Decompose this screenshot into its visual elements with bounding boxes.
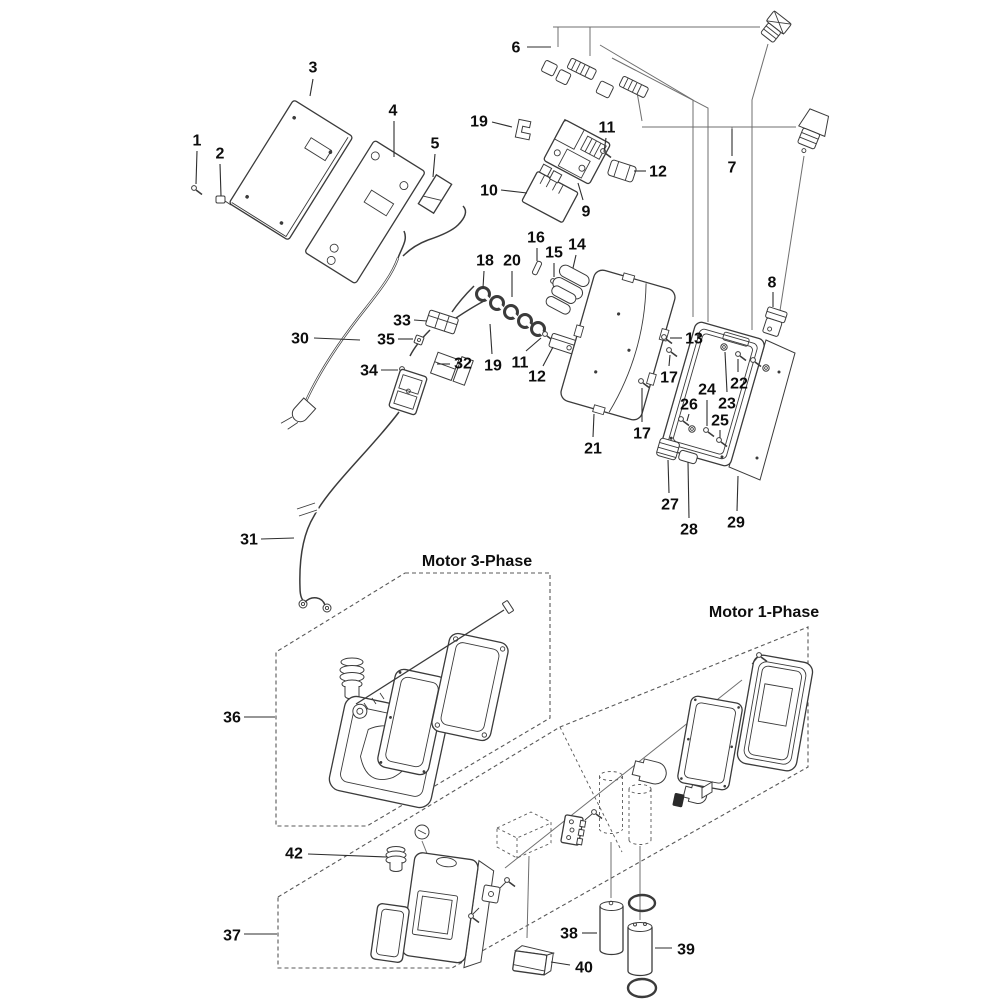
part-6-terminal-connectors-b (596, 68, 649, 112)
spark-plug-connector-icon (758, 11, 791, 45)
exploded-parts-diagram: 1234567891011121314151617171819192011122… (0, 0, 1000, 1000)
part-callout-27: 27 (661, 497, 679, 514)
part-40-box (512, 945, 553, 976)
part-callout-18: 18 (476, 253, 494, 270)
part-callout-35: 35 (377, 332, 395, 349)
part-callout-34: 34 (360, 363, 378, 380)
leader-line-11-2 (526, 338, 541, 351)
leader-line-42 (308, 854, 387, 857)
leader-line-19-2 (490, 324, 492, 354)
part-callout-42: 42 (285, 846, 303, 863)
leader-line-5 (433, 154, 435, 177)
part-callout-19-1: 19 (470, 114, 488, 131)
part-37-switch-housing (401, 852, 495, 970)
part-1phase-cover (736, 654, 814, 773)
part-callout-29: 29 (727, 515, 745, 532)
part-callout-17-2: 17 (633, 426, 651, 443)
part-callout-12-1: 12 (649, 164, 667, 181)
part-39-capacitor (628, 923, 652, 976)
dark-pad (673, 793, 684, 807)
capacitor-strap-large (631, 757, 668, 786)
leader-line-31 (261, 538, 294, 539)
part-callout-36: 36 (223, 710, 241, 727)
lamp-socket-connector-icon (790, 107, 832, 157)
part-35-nut (414, 335, 424, 345)
leader-line-40 (551, 962, 570, 965)
cap-screw (415, 825, 429, 839)
micro-switch (482, 885, 501, 904)
leader-line-21 (593, 414, 594, 437)
part-1-screw (192, 186, 202, 195)
terminal-block (561, 815, 587, 846)
part-callout-15: 15 (545, 245, 563, 262)
leader-line-10 (501, 190, 527, 193)
leader-line-19-1 (492, 122, 512, 127)
leader-line-29 (737, 476, 738, 511)
part-callout-22: 22 (730, 376, 748, 393)
group-title-motor-3-phase: Motor 3-Phase (422, 553, 532, 570)
part-callout-28: 28 (680, 522, 698, 539)
part-1phase-gasket (677, 695, 743, 791)
leader-line-9 (578, 183, 583, 200)
part-callout-33: 33 (393, 313, 411, 330)
part-callout-14: 14 (568, 237, 586, 254)
part-2-nut (216, 196, 231, 205)
part-callout-26: 26 (680, 397, 698, 414)
part-callout-20: 20 (503, 253, 521, 270)
part-16-pin (532, 261, 542, 276)
part-callout-30: 30 (291, 331, 309, 348)
leader-line-33 (414, 320, 427, 321)
part-callout-39: 39 (677, 942, 695, 959)
part-callout-24: 24 (698, 382, 716, 399)
leader-line-1 (196, 151, 197, 184)
switch-block (389, 369, 428, 416)
ghost-capacitor-2 (629, 785, 651, 845)
leader-line-14 (573, 255, 576, 268)
part-callout-11-2: 11 (512, 355, 529, 372)
part-callout-21: 21 (584, 441, 602, 458)
part-callout-40: 40 (575, 960, 593, 977)
o-ring-top (629, 895, 655, 911)
parts-diagram-page: 1234567891011121314151617171819192011122… (0, 0, 1000, 1000)
part-36-cover (430, 632, 509, 742)
part-19-clip-top (515, 119, 532, 140)
part-callout-8: 8 (768, 275, 777, 292)
part-callout-2: 2 (216, 146, 225, 163)
part-37-gasket (370, 903, 409, 963)
wire-33b (456, 300, 486, 318)
part-callout-32: 32 (454, 356, 472, 373)
part-callout-19-2: 19 (484, 358, 502, 375)
part-38-capacitor (600, 901, 623, 954)
leader-line-2 (220, 164, 221, 196)
part-callout-23: 23 (718, 396, 736, 413)
part-callout-7: 7 (728, 160, 737, 177)
leader-line-27 (668, 460, 669, 493)
part-callout-11-1: 11 (599, 120, 616, 137)
part-8-connector (760, 307, 787, 338)
group-title-motor-1-phase: Motor 1-Phase (709, 604, 819, 621)
part-callout-9: 9 (582, 204, 591, 221)
part-36-cable-gland (340, 658, 364, 699)
part-callout-16: 16 (527, 230, 545, 247)
part-14-cylinders (544, 263, 591, 316)
leader-line-28 (688, 462, 689, 518)
leader-line-17-1 (669, 355, 670, 366)
leader-line-12-2 (543, 347, 553, 366)
part-callout-10: 10 (480, 183, 498, 200)
part-callout-12-2: 12 (528, 369, 546, 386)
leader-line-3 (310, 79, 313, 96)
part-42-cable-gland (386, 847, 406, 872)
part-callout-3: 3 (309, 60, 318, 77)
part-12-cable-clamp-top (607, 159, 637, 182)
leader-line-18 (483, 271, 484, 288)
o-ring-bottom (628, 979, 656, 997)
part-callout-38: 38 (560, 926, 578, 943)
leader-line-30 (314, 338, 360, 340)
part-callout-5: 5 (431, 136, 440, 153)
part-callout-1: 1 (193, 133, 202, 150)
part-callout-13: 13 (685, 331, 703, 348)
part-5-strip (418, 175, 451, 213)
part-callout-31: 31 (240, 532, 258, 549)
part-31-ground-wire (294, 412, 399, 612)
part-callout-25: 25 (711, 413, 729, 430)
part-callout-6: 6 (512, 40, 521, 57)
ghost-capacitor-1 (600, 772, 623, 834)
part-callout-4: 4 (389, 103, 398, 120)
ghost-box (497, 812, 551, 858)
part-6-terminal-connectors-a (540, 48, 597, 94)
part-callout-37: 37 (223, 928, 241, 945)
part-callout-17-1: 17 (660, 370, 678, 387)
